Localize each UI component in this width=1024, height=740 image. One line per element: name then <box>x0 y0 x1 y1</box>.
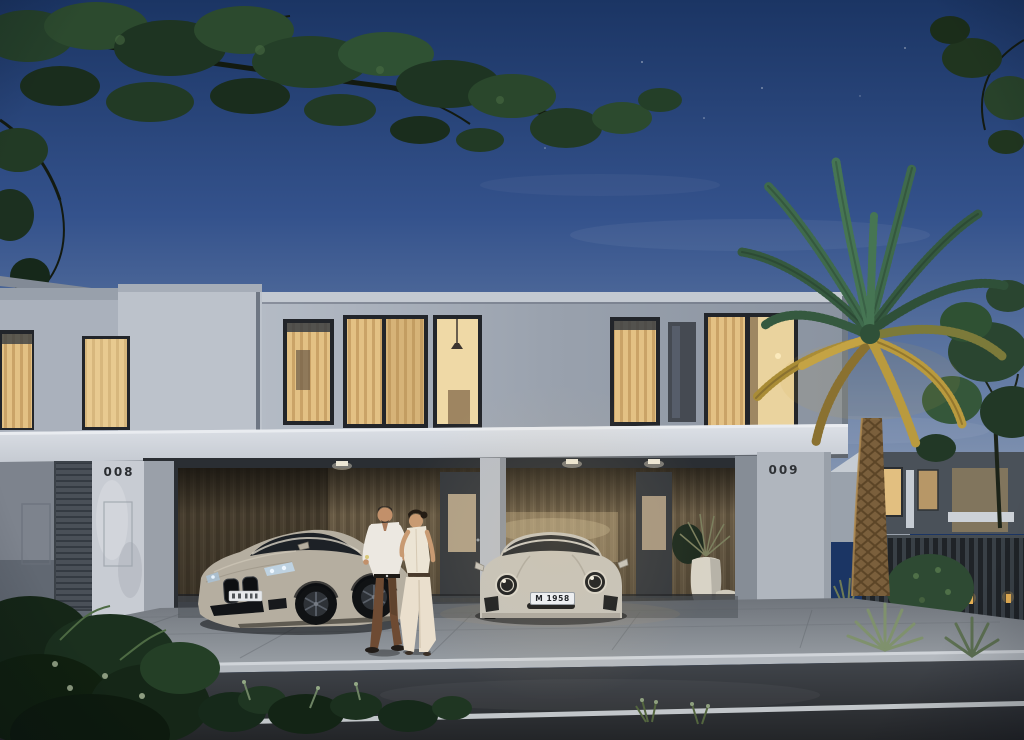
villa-dusk-scene: 008 009 M 1958 <box>0 0 1024 740</box>
scene-canvas <box>0 0 1024 740</box>
vignette <box>0 0 1024 740</box>
porsche-license-plate: M 1958 <box>530 592 575 605</box>
unit-number-009: 009 <box>766 463 802 477</box>
unit-number-008: 008 <box>101 465 137 479</box>
